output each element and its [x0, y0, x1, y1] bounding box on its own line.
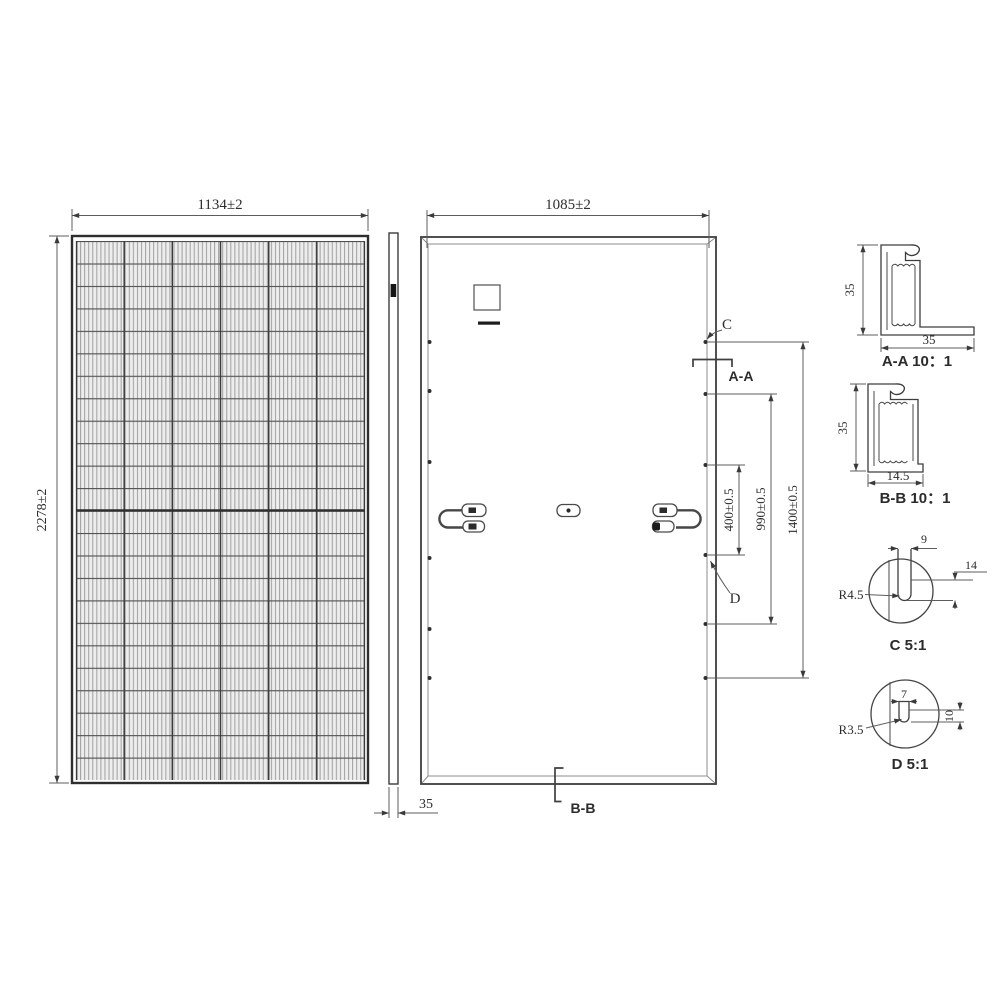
c-label: C 5:1	[890, 637, 927, 654]
back-view: 1085±2 400±0.5 990±0.5 1400±0.5 A-A	[421, 197, 809, 816]
front-view: 1134±2 2278±2	[35, 197, 368, 783]
side-label-mark	[391, 284, 397, 297]
side-thickness-dim-text: 35	[419, 797, 433, 812]
drawing-canvas: 1134±2 2278±2 35	[0, 0, 1000, 1000]
side-profile	[389, 233, 398, 784]
left-connector-upper-clip	[469, 508, 477, 514]
d-slot-length-text: 10	[942, 710, 956, 722]
aa-label: A-A 10：1	[882, 353, 952, 370]
d-radius-dimension: R3.5	[839, 720, 902, 738]
detail-view-bb: 35 14.5 B-B 10：1	[835, 384, 950, 507]
nameplate-label	[474, 285, 500, 310]
left-connector-lower-clip	[469, 524, 477, 530]
back-width-dim-text: 1085±2	[545, 197, 591, 213]
bb-profile-channel	[874, 391, 913, 466]
c-radius-text: R4.5	[839, 587, 864, 602]
hole-pitch-outer-text: 1400±0.5	[785, 485, 800, 534]
d-slot-width-text: 7	[901, 687, 907, 701]
section-a-text: A-A	[729, 368, 754, 384]
c-slot-width-text: 9	[921, 532, 927, 546]
detail-view-aa: 35 35 A-A 10：1	[842, 245, 974, 370]
front-height-dim-text: 2278±2	[35, 489, 50, 532]
right-connector-upper-clip	[660, 508, 668, 514]
aa-width-dim-text: 35	[923, 332, 936, 347]
hole-pitch-inner-text: 400±0.5	[721, 489, 736, 532]
d-slot-width-dimension: 7	[891, 687, 917, 702]
bb-label: B-B 10：1	[880, 490, 951, 507]
d-slot	[899, 702, 909, 723]
side-thickness-dimension: 35	[374, 787, 438, 818]
bb-height-dimension: 35	[835, 384, 866, 471]
bb-height-dim-text: 35	[835, 422, 850, 435]
d-radius-text: R3.5	[839, 722, 864, 737]
c-slot-length-dimension: 14	[906, 558, 987, 609]
front-width-dimension: 1134±2	[72, 197, 368, 231]
section-b-text: B-B	[571, 800, 596, 816]
aa-height-dimension: 35	[842, 245, 878, 335]
detail-view-d: 7 10 R3.5 D 5:1	[839, 680, 964, 773]
technical-drawing: 1134±2 2278±2 35	[0, 0, 1000, 1000]
hole-pitch-dimensions: 400±0.5 990±0.5 1400±0.5	[707, 342, 809, 678]
detail-view-c: 9 14 R4.5 C 5:1	[839, 532, 987, 654]
front-height-dimension: 2278±2	[35, 236, 69, 783]
right-connector-lower-tip	[653, 523, 661, 531]
aa-height-dim-text: 35	[842, 284, 857, 297]
c-detail-circle	[869, 559, 933, 623]
front-width-dim-text: 1134±2	[197, 197, 242, 213]
aa-profile-outline	[881, 245, 974, 335]
detail-d-marker-text: D	[730, 591, 741, 607]
detail-c-marker-text: C	[722, 317, 732, 333]
bb-profile-outline	[868, 384, 923, 472]
c-slot-length-text: 14	[965, 558, 977, 572]
c-slot-width-dimension: 9	[888, 532, 937, 549]
aa-profile-channel	[887, 252, 915, 330]
hole-pitch-middle-text: 990±0.5	[753, 488, 768, 531]
barcode-mark	[478, 322, 500, 325]
bb-width-dimension: 14.5	[868, 468, 923, 487]
junction-box-dot	[566, 508, 570, 512]
d-label: D 5:1	[892, 756, 929, 773]
bb-width-dim-text: 14.5	[887, 468, 910, 483]
c-slot	[898, 549, 911, 601]
